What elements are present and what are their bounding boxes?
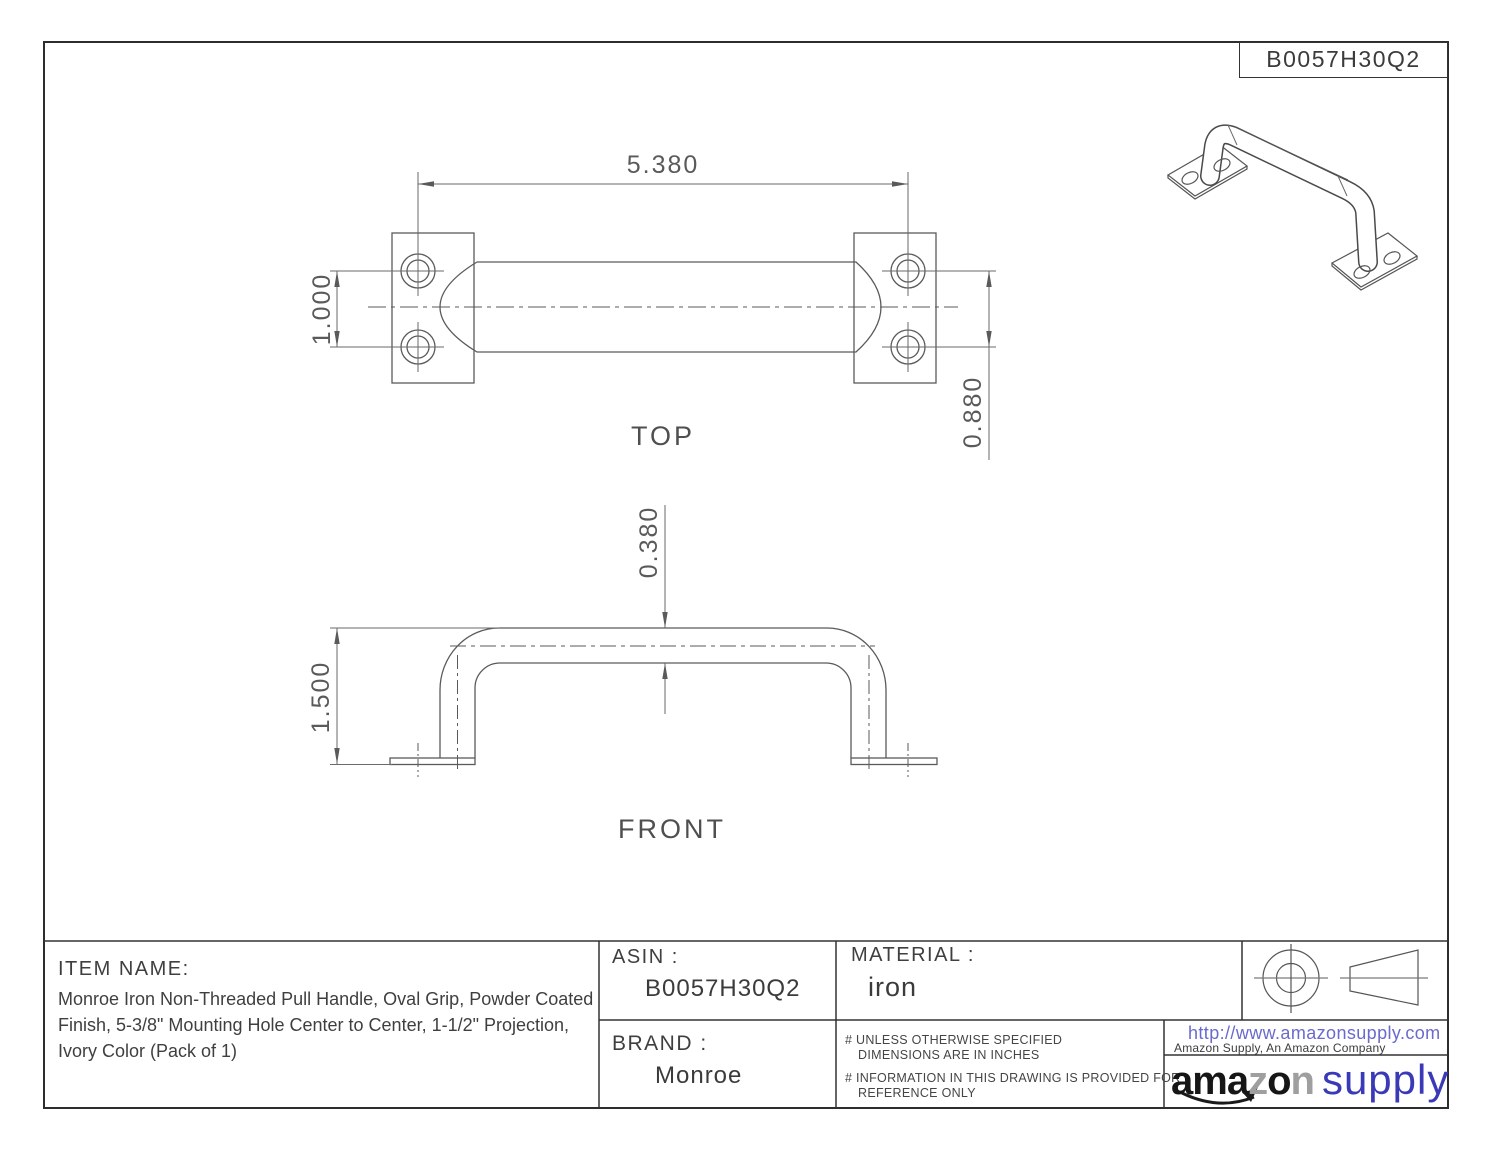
material-value: iron bbox=[868, 972, 917, 1003]
dim-top-width: 5.380 bbox=[608, 152, 718, 178]
projection-symbol bbox=[1254, 944, 1428, 1013]
front-view-dimensions bbox=[330, 505, 668, 765]
note-units: # UNLESS OTHERWISE SPECIFIED DIMENSIONS … bbox=[845, 1033, 1062, 1063]
material-label: MATERIAL : bbox=[851, 944, 975, 967]
asin-value: B0057H30Q2 bbox=[645, 975, 800, 1003]
logo-n: n bbox=[1291, 1059, 1314, 1103]
logo-supply: supply bbox=[1322, 1056, 1449, 1103]
logo-o: o bbox=[1267, 1059, 1290, 1103]
top-view-dimensions bbox=[334, 172, 991, 460]
logo-z: z bbox=[1248, 1059, 1267, 1103]
logo-ama: ama bbox=[1171, 1059, 1248, 1103]
isometric-view bbox=[1168, 125, 1417, 290]
company-line: Amazon Supply, An Amazon Company bbox=[1174, 1041, 1386, 1055]
note-reference-line2: REFERENCE ONLY bbox=[845, 1086, 1181, 1101]
doc-number-box: B0057H30Q2 bbox=[1239, 42, 1448, 78]
brand-value: Monroe bbox=[655, 1062, 742, 1090]
note-reference: # INFORMATION IN THIS DRAWING IS PROVIDE… bbox=[845, 1071, 1181, 1101]
note-units-line2: DIMENSIONS ARE IN INCHES bbox=[845, 1048, 1062, 1063]
dim-front-height: 1.500 bbox=[308, 642, 334, 752]
drawing-sheet: B0057H30Q2 5.380 1.000 0.880 TOP 0.380 1… bbox=[0, 0, 1500, 1159]
dim-front-tube-diameter: 0.380 bbox=[636, 487, 662, 597]
brand-label: BRAND : bbox=[612, 1032, 708, 1056]
asin-label: ASIN : bbox=[612, 946, 679, 969]
front-view-label: FRONT bbox=[592, 814, 752, 845]
dim-top-edge-offset: 0.880 bbox=[960, 357, 986, 467]
item-name-text: Monroe Iron Non-Threaded Pull Handle, Ov… bbox=[58, 986, 610, 1064]
top-view-drawing bbox=[330, 233, 996, 383]
top-view-label: TOP bbox=[593, 421, 733, 452]
note-units-line1: # UNLESS OTHERWISE SPECIFIED bbox=[845, 1033, 1062, 1048]
doc-number: B0057H30Q2 bbox=[1266, 46, 1420, 72]
item-name-label: ITEM NAME: bbox=[58, 958, 190, 981]
sheet-border bbox=[44, 42, 1448, 1108]
amazonsupply-logo: amazonsupply bbox=[1171, 1055, 1449, 1105]
front-view-drawing bbox=[390, 628, 937, 777]
note-reference-line1: # INFORMATION IN THIS DRAWING IS PROVIDE… bbox=[845, 1071, 1181, 1086]
dim-top-hole-spacing: 1.000 bbox=[309, 254, 335, 364]
